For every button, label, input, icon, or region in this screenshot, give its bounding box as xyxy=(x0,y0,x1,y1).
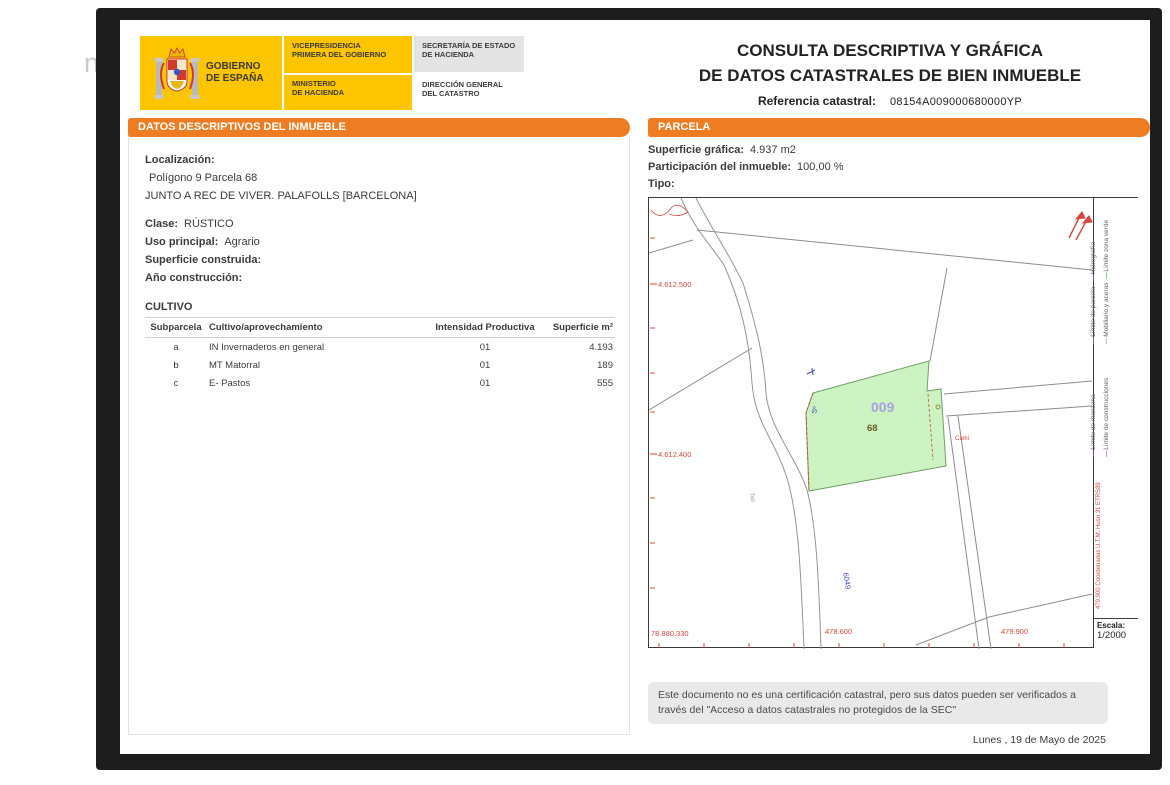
road-right-line xyxy=(696,198,821,649)
table-cell: E- Pastos xyxy=(207,374,425,392)
disclaimer-note: Este documento no es una certificación c… xyxy=(648,682,1108,724)
utm-coordinates-note: 479.900 Coordenadas U.T.M. Huso 31 ETRS8… xyxy=(1095,471,1104,609)
direccion-general-label: DIRECCIÓN GENERAL DEL CATASTRO xyxy=(422,80,524,98)
coordinate-label-bottom-left: 78.880.330 xyxy=(651,629,689,638)
legend-label-zonaverde: Límite zona verde xyxy=(1103,220,1110,272)
left-section-header: DATOS DESCRIPTIVOS DEL INMUEBLE xyxy=(128,118,630,137)
legend-line-parcela-hidrografia: — Límite de parcela — Hidrografía xyxy=(1089,209,1098,344)
blue-map-label-2: 6049 xyxy=(841,572,853,590)
legend-dash-parcela: — xyxy=(1090,339,1097,345)
screen: ni xyxy=(0,0,1170,785)
participacion-row: Participación del inmueble:100,00 % xyxy=(648,159,1148,176)
document-date: Lunes , 19 de Mayo de 2025 xyxy=(648,734,1106,746)
road-left-line xyxy=(681,198,804,649)
table-cell: c xyxy=(145,374,207,392)
bottom-axis-ticks xyxy=(659,643,1064,648)
legend-dash-construcciones: — xyxy=(1103,452,1110,458)
vicepresidencia-label: VICEPRESIDENCIA PRIMERA DEL GOBIERNO xyxy=(292,41,412,59)
legend-line-construcciones: — Límite de construcciones xyxy=(1102,357,1111,457)
title-line-2: DE DATOS CATASTRALES DE BIEN INMUEBLE xyxy=(640,63,1140,88)
superficie-grafica-row: Superficie gráfica:4.937 m2 xyxy=(648,142,1148,159)
column-header: Subparcela xyxy=(145,318,207,338)
uso-label: Uso principal: xyxy=(145,236,218,248)
column-header: Intensidad Productiva xyxy=(425,318,545,338)
coordinate-label-bottom-right: 479.900 xyxy=(1001,627,1028,636)
legend-dash-mobiliario: — xyxy=(1103,339,1110,345)
logo-gobierno-box: GOBIERNO DE ESPAÑA xyxy=(140,36,282,110)
boundary-line xyxy=(649,348,752,410)
localizacion-label: Localización: xyxy=(145,151,615,169)
legend-label-manzana: Límite de manzana xyxy=(1090,394,1097,449)
cultivo-title: CULTIVO xyxy=(145,301,615,313)
superficie-grafica-value: 4.937 m2 xyxy=(750,144,796,156)
table-cell: 555 xyxy=(545,374,615,392)
tipo-label: Tipo: xyxy=(648,176,1148,193)
parcel-number-label: 009 xyxy=(871,399,895,415)
vicepresidencia-box: VICEPRESIDENCIA PRIMERA DEL GOBIERNO xyxy=(284,36,412,73)
superficie-grafica-label: Superficie gráfica: xyxy=(648,144,744,156)
gobierno-label: GOBIERNO DE ESPAÑA xyxy=(206,61,264,85)
direccion-general-box: DIRECCIÓN GENERAL DEL CATASTRO xyxy=(414,80,524,98)
secretaria-label: SECRETARÍA DE ESTADO DE HACIENDA xyxy=(422,41,524,59)
spain-coat-of-arms-icon xyxy=(154,45,200,105)
legend-label-hidrografia: Hidrografía xyxy=(1090,242,1097,274)
table-cell: b xyxy=(145,356,207,374)
participacion-label: Participación del inmueble: xyxy=(648,161,791,173)
uso-row: Uso principal:Agrario xyxy=(145,233,615,251)
cultivo-table-body: aIN Invernaderos en general014.193bMT Ma… xyxy=(145,338,615,393)
document-page: GOBIERNO DE ESPAÑA VICEPRESIDENCIA PRIME… xyxy=(120,20,1150,754)
table-cell: a xyxy=(145,338,207,357)
map-legend: — Límite de parcela — Hidrografía — Mobi… xyxy=(1093,198,1138,648)
title-line-1: CONSULTA DESCRIPTIVA Y GRÁFICA xyxy=(640,38,1140,63)
secretaria-box: SECRETARÍA DE ESTADO DE HACIENDA xyxy=(414,36,524,72)
legend-dash-hidrografia: — xyxy=(1090,276,1097,282)
cadastral-map: 009 68 Sº 6049 Tas Camí xyxy=(648,197,1138,648)
cultivo-table-header-row: SubparcelaCultivo/aprovechamientoIntensi… xyxy=(145,318,615,338)
legend-label-construcciones: Límite de construcciones xyxy=(1103,378,1110,450)
legend-label-mobiliario: Mobiliario y aceras xyxy=(1103,283,1110,337)
table-cell: IN Invernaderos en general xyxy=(207,338,425,357)
document-title: CONSULTA DESCRIPTIVA Y GRÁFICA DE DATOS … xyxy=(640,38,1140,108)
ministerio-label: MINISTERIO DE HACIENDA xyxy=(292,79,412,97)
scale-label: Escala: xyxy=(1097,621,1138,630)
blue-marker xyxy=(807,368,815,375)
right-section-header: PARCELA xyxy=(648,118,1150,137)
reference-value: 08154A009000680000YP xyxy=(890,96,1022,108)
legend-line-mobiliario-zonaverde: — Mobiliario y aceras — Límite zona verd… xyxy=(1102,209,1111,344)
coordinate-label-left-bottom: 4.612.400 xyxy=(658,450,691,459)
boundary-line xyxy=(989,594,1092,617)
clase-row: Clase:RÚSTICO xyxy=(145,215,615,233)
ano-construccion-label: Año construcción: xyxy=(145,269,615,287)
legend-line-manzana: — Límite de manzana xyxy=(1089,357,1098,457)
reference-label: Referencia catastral: xyxy=(758,94,876,108)
table-cell: 4.193 xyxy=(545,338,615,357)
participacion-value: 100,00 % xyxy=(797,161,843,173)
scale-value: 1/2000 xyxy=(1097,630,1138,641)
table-cell: MT Matorral xyxy=(207,356,425,374)
clase-value: RÚSTICO xyxy=(184,218,234,230)
left-axis-ticks xyxy=(650,238,657,588)
table-cell: 01 xyxy=(425,338,545,357)
table-row: bMT Matorral01189 xyxy=(145,356,615,374)
boundary-line xyxy=(944,381,1092,394)
table-row: cE- Pastos01555 xyxy=(145,374,615,392)
superficie-construida-label: Superficie construida: xyxy=(145,251,615,269)
ministerio-box: MINISTERIO DE HACIENDA xyxy=(284,75,412,110)
red-map-label: Camí xyxy=(955,436,970,442)
legend-dash-manzana: — xyxy=(1090,452,1097,458)
table-cell: 01 xyxy=(425,374,545,392)
uso-value: Agrario xyxy=(224,236,259,248)
gray-map-label: Tas xyxy=(748,492,756,502)
boundary-line xyxy=(649,240,693,253)
column-header: Cultivo/aprovechamiento xyxy=(207,318,425,338)
column-header: Superficie m² xyxy=(545,318,615,338)
parcela-info: Superficie gráfica:4.937 m2 Participació… xyxy=(648,142,1148,193)
table-row: aIN Invernaderos en general014.193 xyxy=(145,338,615,357)
localizacion-line-1: Polígono 9 Parcela 68 xyxy=(145,169,615,187)
parcel-sub-label: 68 xyxy=(867,423,878,434)
document-frame: GOBIERNO DE ESPAÑA VICEPRESIDENCIA PRIME… xyxy=(96,8,1162,770)
cadastral-reference: Referencia catastral:08154A009000680000Y… xyxy=(640,94,1140,108)
scale-box: Escala: 1/2000 xyxy=(1094,618,1138,648)
map-drawing: 009 68 Sº 6049 Tas Camí xyxy=(649,198,1139,649)
boundary-line xyxy=(946,406,1092,416)
legend-label-parcela: Límite de parcela xyxy=(1090,287,1097,337)
localizacion-line-2: JUNTO A REC DE VIVER. PALAFOLLS [BARCELO… xyxy=(145,187,615,205)
coordinate-label-left-top: 4.612.500 xyxy=(658,280,691,289)
table-cell: 189 xyxy=(545,356,615,374)
left-panel: Localización: Polígono 9 Parcela 68 JUNT… xyxy=(128,137,630,735)
table-cell: 01 xyxy=(425,356,545,374)
coordinate-label-bottom-mid: 478.600 xyxy=(825,627,852,636)
boundary-line xyxy=(930,268,947,361)
clase-label: Clase: xyxy=(145,218,178,230)
red-boundary-squiggle xyxy=(651,205,688,215)
boundary-line xyxy=(697,230,1092,270)
cultivo-table: SubparcelaCultivo/aprovechamientoIntensi… xyxy=(145,317,615,392)
legend-dash-zonaverde: — xyxy=(1103,273,1110,279)
